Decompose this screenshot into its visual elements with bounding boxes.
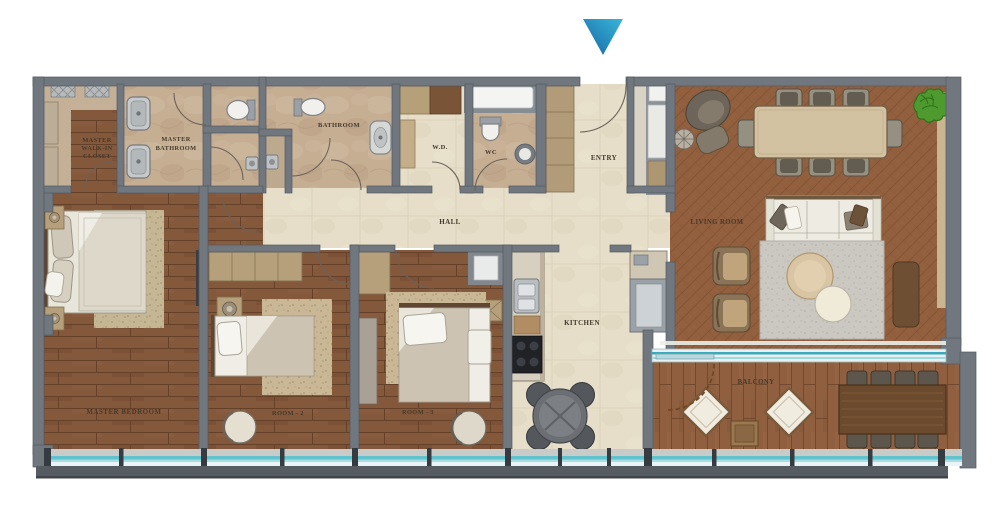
svg-text:CLOSET: CLOSET [83, 153, 111, 160]
svg-text:HALL: HALL [439, 218, 460, 226]
svg-text:ROOM - 2: ROOM - 2 [272, 410, 304, 417]
svg-text:ROOM - 3: ROOM - 3 [402, 409, 434, 416]
svg-text:KITCHEN: KITCHEN [564, 319, 600, 327]
svg-text:WC: WC [485, 149, 497, 156]
svg-text:BALCONY: BALCONY [738, 379, 775, 386]
svg-text:BATHROOM: BATHROOM [318, 122, 360, 129]
svg-text:WALK-IN: WALK-IN [81, 145, 112, 152]
svg-text:W.D.: W.D. [432, 144, 447, 151]
svg-text:MASTER BEDROOM: MASTER BEDROOM [86, 409, 161, 416]
svg-text:MASTER: MASTER [82, 137, 111, 144]
svg-text:ENTRY: ENTRY [591, 154, 617, 162]
svg-text:LIVING ROOM: LIVING ROOM [691, 219, 744, 226]
svg-text:MASTER: MASTER [161, 136, 190, 143]
svg-text:BATHROOM: BATHROOM [156, 145, 197, 152]
